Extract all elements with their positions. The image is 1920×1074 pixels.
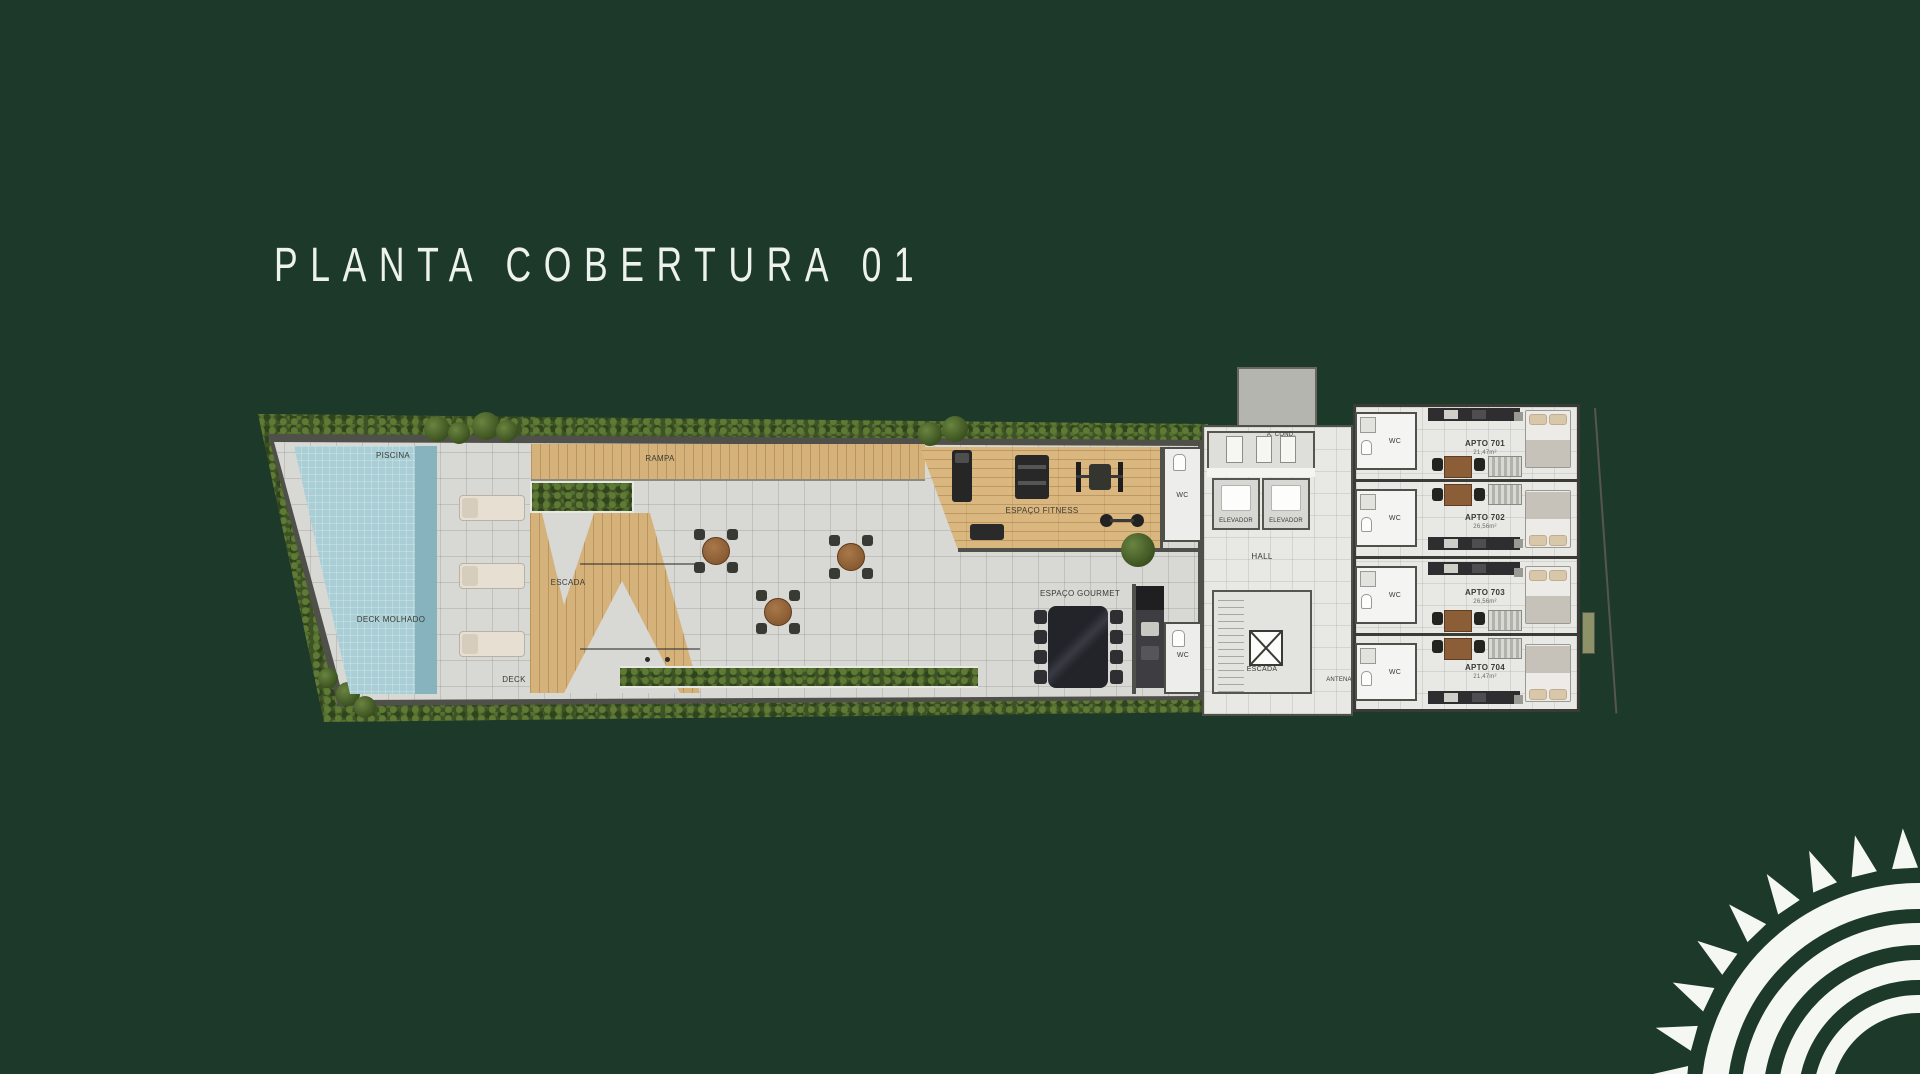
wet-deck-label: DECK MOLHADO xyxy=(341,616,441,625)
cooktop xyxy=(1472,693,1486,702)
sink xyxy=(1141,622,1159,636)
gym-machine-bar xyxy=(1018,465,1046,469)
apto-701-bed xyxy=(1525,410,1571,468)
chair xyxy=(756,590,767,601)
bench-pad xyxy=(1089,464,1111,490)
fitness-wc-label: WC xyxy=(1163,492,1202,500)
antenna-label: ANTENA xyxy=(1316,677,1362,684)
apto-701-label: APTO 701 xyxy=(1448,440,1522,449)
stair-treads xyxy=(1218,596,1244,692)
apto-703-wc-label: WC xyxy=(1375,592,1415,600)
chair xyxy=(756,623,767,634)
sink xyxy=(1444,564,1458,573)
shower xyxy=(1360,571,1376,587)
chair xyxy=(727,562,738,573)
bed-pillow xyxy=(1549,414,1567,425)
apto-702-table xyxy=(1444,484,1472,506)
round-table xyxy=(702,537,730,565)
gym-machine-bar xyxy=(1018,481,1046,485)
gourmet-chair xyxy=(1034,650,1047,664)
shrub xyxy=(424,416,450,442)
apto-701-area: 21,47m² xyxy=(1448,450,1522,457)
ac-unit xyxy=(1256,436,1272,463)
elevator-cab xyxy=(1221,485,1251,511)
bollard-light xyxy=(645,657,650,662)
lounge-headrest xyxy=(462,566,478,586)
apto-702-cabinet xyxy=(1488,484,1522,505)
bed-blanket xyxy=(1526,492,1570,519)
cooktop xyxy=(1141,646,1159,660)
apto-702-label: APTO 702 xyxy=(1448,514,1522,523)
chair xyxy=(1474,458,1485,471)
bed-pillow xyxy=(1529,414,1547,425)
round-table xyxy=(764,598,792,626)
lounge-headrest xyxy=(462,498,478,518)
pool-label: PISCINA xyxy=(353,452,433,461)
elevator-1: ELEVADOR xyxy=(1212,478,1260,530)
gym-machine xyxy=(1015,455,1049,499)
chair xyxy=(789,623,800,634)
stairwell-symbol xyxy=(1249,630,1283,666)
cooktop xyxy=(1472,410,1486,419)
apto-702-wc-room: WC xyxy=(1355,489,1417,547)
apto-704-wc-label: WC xyxy=(1375,669,1415,677)
apto-703-area: 26,56m² xyxy=(1448,599,1522,606)
kitchen-counter xyxy=(1136,586,1164,688)
unit-separator-wall xyxy=(1353,556,1580,559)
shower xyxy=(1360,648,1376,664)
dining-table-set xyxy=(829,535,873,579)
lounge-headrest xyxy=(462,634,478,654)
apto-702-bed xyxy=(1525,490,1571,548)
sink xyxy=(1444,693,1458,702)
planter-box xyxy=(530,481,634,513)
bed-pillow xyxy=(1529,570,1547,581)
apto-702-counter xyxy=(1428,537,1520,550)
apto-703-counter xyxy=(1428,562,1520,575)
bed-blanket xyxy=(1526,596,1570,623)
bed-pillow xyxy=(1529,535,1547,546)
apto-703-table xyxy=(1444,610,1472,632)
apto-703-bed xyxy=(1525,566,1571,624)
shower xyxy=(1360,417,1376,433)
sun-logo-icon xyxy=(1500,654,1920,1074)
chair xyxy=(829,568,840,579)
gourmet-chair xyxy=(1110,670,1123,684)
ramp xyxy=(531,444,925,481)
apto-704-table xyxy=(1444,638,1472,660)
nightstand xyxy=(1514,539,1523,548)
curl-machine xyxy=(970,524,1004,540)
machine-room xyxy=(1237,367,1317,427)
treadmill xyxy=(952,450,972,502)
apto-704-area: 21,47m² xyxy=(1448,674,1522,681)
nightstand xyxy=(1514,568,1523,577)
apto-702-area: 26,56m² xyxy=(1448,524,1522,531)
chair xyxy=(1474,640,1485,653)
stair-room xyxy=(1212,590,1312,694)
tree xyxy=(1121,533,1155,567)
dining-table-set xyxy=(694,529,738,573)
nightstand xyxy=(1514,412,1523,421)
bed-pillow xyxy=(1549,570,1567,581)
elevator-2: ELEVADOR xyxy=(1262,478,1310,530)
apto-702-wc-label: WC xyxy=(1375,515,1415,523)
cooktop xyxy=(1472,539,1486,548)
lounge-chair xyxy=(459,563,525,589)
sink xyxy=(1444,539,1458,548)
shrub xyxy=(942,416,968,442)
shower xyxy=(1360,494,1376,510)
chair xyxy=(1432,488,1443,501)
dumbbell-rack xyxy=(1100,514,1144,527)
toilet xyxy=(1173,454,1186,471)
core-stairs-label: ESCADA xyxy=(1232,666,1292,674)
toilet xyxy=(1361,517,1372,532)
chair xyxy=(1432,612,1443,625)
hedge-planter xyxy=(620,666,978,688)
chair xyxy=(1474,612,1485,625)
terrace-stairs-label: ESCADA xyxy=(538,579,598,588)
tech-area-label: A. COND. xyxy=(1248,432,1314,439)
gourmet-chair xyxy=(1034,610,1047,624)
chair xyxy=(1432,458,1443,471)
pool-edge xyxy=(415,446,437,694)
gourmet-chair xyxy=(1110,650,1123,664)
chair xyxy=(829,535,840,546)
chair xyxy=(1474,488,1485,501)
elevator-cab xyxy=(1271,485,1301,511)
ramp-label: RAMPA xyxy=(628,455,692,464)
step-rail xyxy=(580,563,700,565)
gourmet-chair xyxy=(1034,670,1047,684)
shrub xyxy=(496,420,518,442)
unit-separator-wall xyxy=(1353,633,1580,636)
chair xyxy=(727,529,738,540)
chair xyxy=(862,568,873,579)
lounge-chair xyxy=(459,495,525,521)
apto-704-wc-room: WC xyxy=(1355,643,1417,701)
gourmet-chair xyxy=(1034,630,1047,644)
elevator-lobby-sill xyxy=(1207,468,1315,477)
chair xyxy=(1432,640,1443,653)
apto-704-label: APTO 704 xyxy=(1448,664,1522,673)
apto-701-wc-room: WC xyxy=(1355,412,1417,470)
apto-701-table xyxy=(1444,456,1472,478)
chair xyxy=(789,590,800,601)
ac-unit xyxy=(1226,436,1243,463)
chair xyxy=(694,562,705,573)
apto-703-cabinet xyxy=(1488,610,1522,631)
gourmet-table xyxy=(1048,606,1108,688)
apto-703-wc-room: WC xyxy=(1355,566,1417,624)
gourmet-label: ESPAÇO GOURMET xyxy=(1018,590,1142,599)
shrub xyxy=(448,422,470,444)
apto-701-wc-label: WC xyxy=(1375,438,1415,446)
round-table xyxy=(837,543,865,571)
floor-plan: PISCINA DECK MOLHADO RAMPA ESCADA DECK xyxy=(258,400,1630,730)
fitness-wall xyxy=(958,548,1202,552)
toilet xyxy=(1361,440,1372,455)
ac-unit xyxy=(1280,436,1296,463)
balcony-planter xyxy=(1582,612,1595,654)
cooktop xyxy=(1472,564,1486,573)
apto-701-counter xyxy=(1428,408,1520,421)
step-rail xyxy=(580,648,700,650)
shrub xyxy=(318,668,338,688)
apto-703-label: APTO 703 xyxy=(1448,589,1522,598)
bed-blanket xyxy=(1526,440,1570,467)
toilet xyxy=(1361,671,1372,686)
gourmet-wc-label: WC xyxy=(1164,652,1202,660)
page-title: PLANTA COBERTURA 01 xyxy=(274,238,926,293)
dining-table-set xyxy=(756,590,800,634)
toilet xyxy=(1361,594,1372,609)
unit-separator-wall xyxy=(1353,479,1580,482)
fitness-label: ESPAÇO FITNESS xyxy=(980,507,1104,516)
bed-pillow xyxy=(1549,535,1567,546)
lounge-chair xyxy=(459,631,525,657)
shrub xyxy=(918,422,942,446)
shrub xyxy=(354,696,376,718)
treadmill-belt xyxy=(955,453,969,463)
chair xyxy=(862,535,873,546)
slide: { "slide": { "title": "PLANTA COBERTURA … xyxy=(0,0,1920,1074)
apto-701-cabinet xyxy=(1488,456,1522,477)
hall-label: HALL xyxy=(1232,553,1292,562)
dumbbell-bar xyxy=(1110,519,1134,522)
sink xyxy=(1444,410,1458,419)
toilet xyxy=(1172,630,1185,647)
chair xyxy=(694,529,705,540)
bench-press xyxy=(1076,460,1123,494)
gourmet-chair xyxy=(1110,610,1123,624)
elevator-2-label: ELEVADOR xyxy=(1264,518,1308,525)
bollard-light xyxy=(665,657,670,662)
gourmet-chair xyxy=(1110,630,1123,644)
deck-label: DECK xyxy=(484,676,544,685)
elevator-1-label: ELEVADOR xyxy=(1214,518,1258,525)
